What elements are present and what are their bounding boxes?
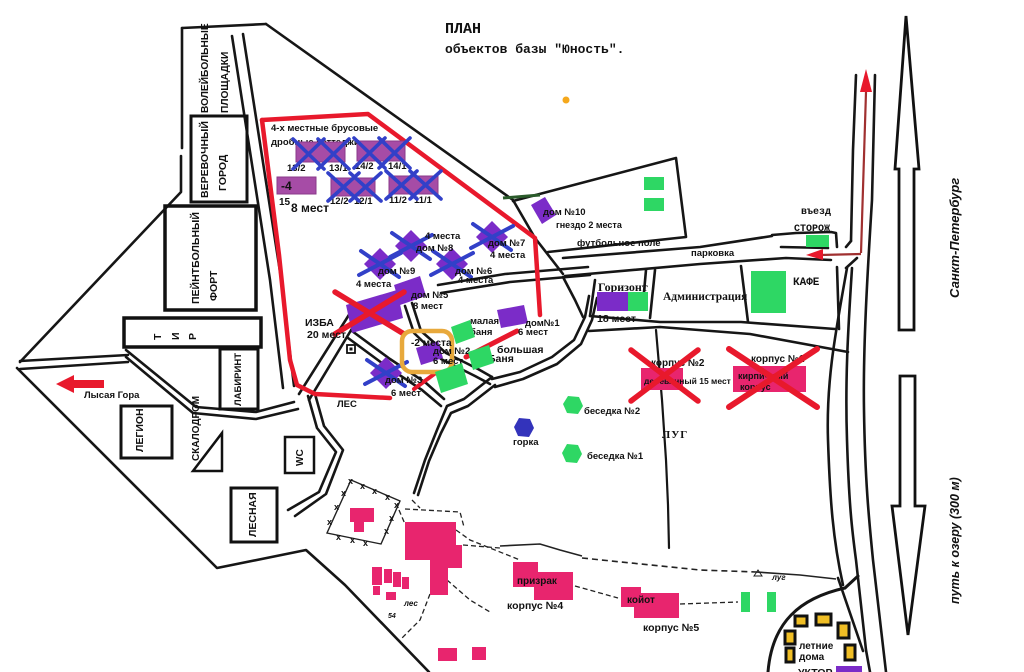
svg-text:20 мест: 20 мест — [307, 329, 346, 341]
svg-text:ФОРТ: ФОРТ — [208, 270, 220, 301]
svg-text:6 мест: 6 мест — [518, 327, 548, 338]
svg-text:дома: дома — [799, 652, 825, 663]
svg-text:въезд: въезд — [801, 207, 831, 218]
svg-text:дом №9: дом №9 — [378, 266, 415, 277]
svg-text:x: x — [341, 488, 346, 498]
svg-text:дом №5: дом №5 — [411, 290, 449, 301]
svg-text:ВЕРЕВОЧНЫЙ: ВЕРЕВОЧНЫЙ — [198, 121, 211, 198]
svg-text:И: И — [170, 332, 182, 340]
svg-text:призрак: призрак — [517, 576, 558, 587]
svg-text:Администрация: Администрация — [663, 291, 747, 303]
svg-text:лес: лес — [403, 599, 418, 608]
svg-text:СТОРОЖ: СТОРОЖ — [794, 224, 830, 235]
svg-text:дом №3: дом №3 — [385, 375, 422, 386]
svg-text:x: x — [389, 513, 394, 523]
svg-text:x: x — [385, 492, 390, 502]
svg-text:4-х местные брусовые: 4-х местные брусовые — [271, 123, 378, 134]
svg-text:дом №7: дом №7 — [488, 238, 525, 249]
svg-text:x: x — [360, 481, 365, 491]
svg-text:Т: Т — [152, 333, 164, 340]
svg-text:x: x — [363, 538, 368, 548]
svg-text:парковка: парковка — [691, 248, 735, 259]
svg-text:беседка №2: беседка №2 — [584, 406, 640, 417]
svg-text:x: x — [350, 535, 355, 545]
svg-text:ЛУГ: ЛУГ — [662, 429, 688, 441]
svg-text:летние: летние — [799, 641, 834, 652]
svg-text:ПЕЙНТБОЛЬНЫЙ: ПЕЙНТБОЛЬНЫЙ — [189, 212, 202, 304]
svg-text:WC: WC — [295, 449, 306, 466]
svg-text:Горизонт: Горизонт — [598, 280, 648, 294]
svg-text:18 мест: 18 мест — [597, 313, 636, 325]
svg-text:x: x — [334, 502, 339, 512]
svg-text:корпус №4: корпус №4 — [507, 600, 563, 612]
svg-text:ИЗБА: ИЗБА — [305, 317, 334, 329]
svg-text:ПЛОЩАДКИ: ПЛОЩАДКИ — [220, 52, 231, 113]
svg-text:КАФЕ: КАФЕ — [793, 277, 820, 289]
svg-text:4 места: 4 места — [490, 250, 526, 261]
svg-text:4 места: 4 места — [356, 279, 392, 290]
svg-text:x: x — [348, 476, 353, 486]
svg-text:гнездо 2 места: гнездо 2 места — [556, 220, 623, 230]
svg-text:УКТОР: УКТОР — [798, 667, 833, 672]
svg-text:4 места: 4 места — [425, 231, 461, 242]
svg-text:луг: луг — [771, 573, 786, 582]
svg-text:ПЛАН: ПЛАН — [445, 21, 481, 38]
svg-text:Р: Р — [187, 333, 199, 340]
svg-text:койот: койот — [627, 595, 655, 606]
svg-text:4 места: 4 места — [458, 275, 494, 286]
svg-text:путь к озеру (300 м): путь к озеру (300 м) — [948, 477, 962, 604]
svg-text:Лысая Гора: Лысая Гора — [84, 390, 140, 401]
svg-text:ЛЕСНАЯ: ЛЕСНАЯ — [247, 492, 259, 537]
svg-text:СКАЛОДРОМ: СКАЛОДРОМ — [191, 396, 202, 461]
svg-text:54: 54 — [388, 613, 396, 620]
svg-text:беседка №1: беседка №1 — [587, 451, 644, 462]
svg-text:дом №10: дом №10 — [543, 207, 586, 218]
svg-text:футбольное поле: футбольное поле — [577, 238, 661, 249]
svg-text:x: x — [394, 500, 399, 510]
svg-text:малая: малая — [470, 316, 499, 327]
svg-text:8 мест: 8 мест — [413, 301, 443, 312]
svg-text:Санкт-Петербург: Санкт-Петербург — [947, 178, 962, 298]
svg-text:ЛЕС: ЛЕС — [337, 399, 357, 410]
svg-text:горка: горка — [513, 437, 539, 448]
svg-text:15: 15 — [279, 197, 291, 208]
svg-text:x: x — [327, 517, 332, 527]
svg-text:дом №8: дом №8 — [416, 243, 453, 254]
svg-text:8 мест: 8 мест — [291, 201, 329, 215]
svg-text:x: x — [372, 486, 377, 496]
svg-text:x: x — [384, 526, 389, 536]
svg-text:11/2: 11/2 — [389, 195, 407, 206]
svg-text:объектов базы "Юность".: объектов базы "Юность". — [445, 42, 624, 57]
svg-text:x: x — [336, 532, 341, 542]
svg-text:ГОРОД: ГОРОД — [217, 154, 229, 191]
svg-text:корпус №5: корпус №5 — [643, 622, 699, 634]
svg-text:-4: -4 — [281, 179, 292, 193]
svg-text:ЛАБИРИНТ: ЛАБИРИНТ — [233, 353, 244, 406]
svg-text:ЛЕГИОН: ЛЕГИОН — [134, 408, 146, 452]
svg-text:ВОЛЕЙБОЛЬНЫЕ: ВОЛЕЙБОЛЬНЫЕ — [198, 23, 211, 113]
svg-text:6 мест: 6 мест — [391, 388, 421, 399]
